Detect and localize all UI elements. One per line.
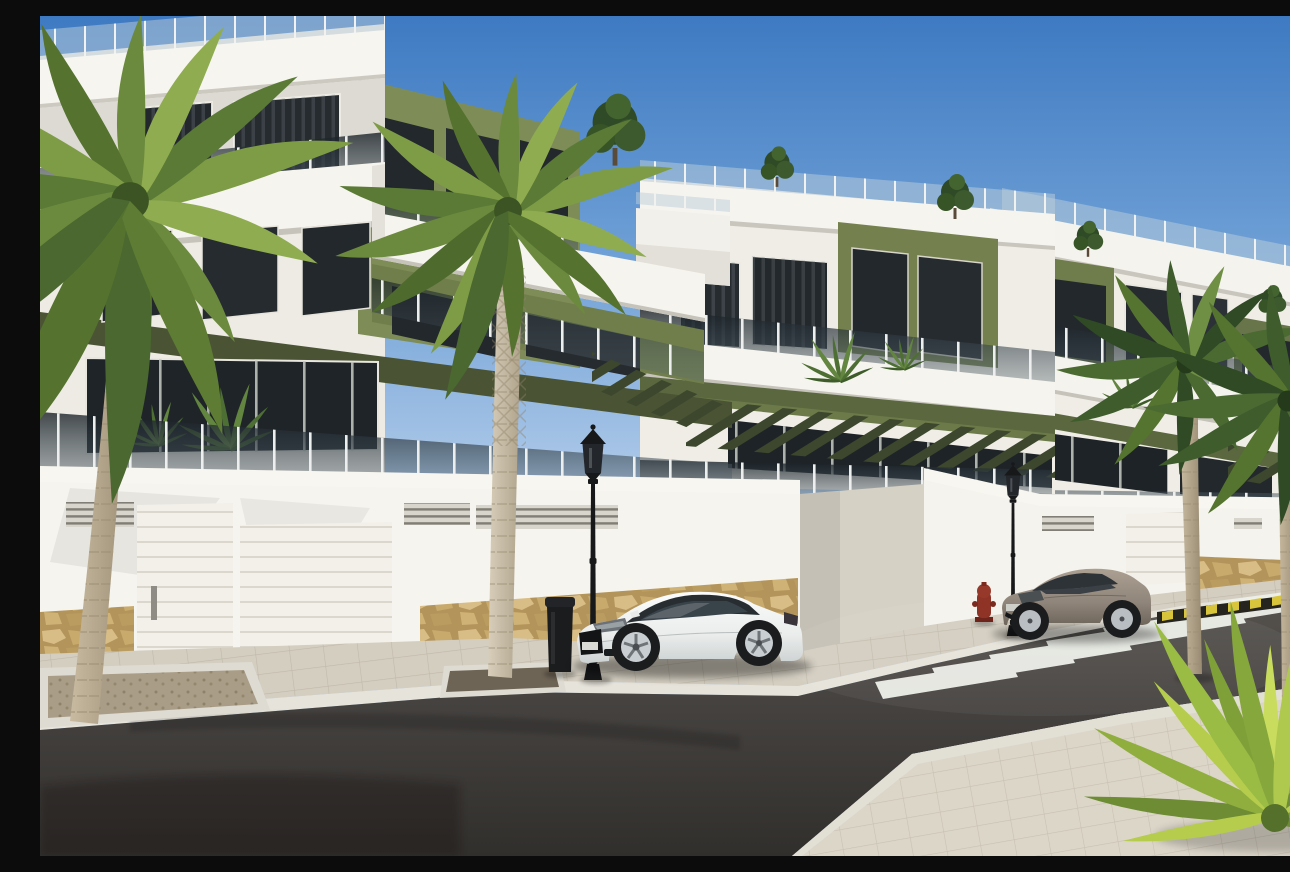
car-wheel (736, 620, 782, 666)
property-render-image (40, 16, 1290, 856)
vent-grille (1234, 518, 1262, 529)
vent-grille (1042, 516, 1094, 531)
car-wheel (1011, 602, 1049, 640)
car-wheel (612, 623, 660, 671)
garage-door (1126, 512, 1190, 586)
garage-door-handle (151, 586, 157, 620)
vent-grille (404, 503, 470, 525)
car-wheel (1103, 600, 1141, 638)
